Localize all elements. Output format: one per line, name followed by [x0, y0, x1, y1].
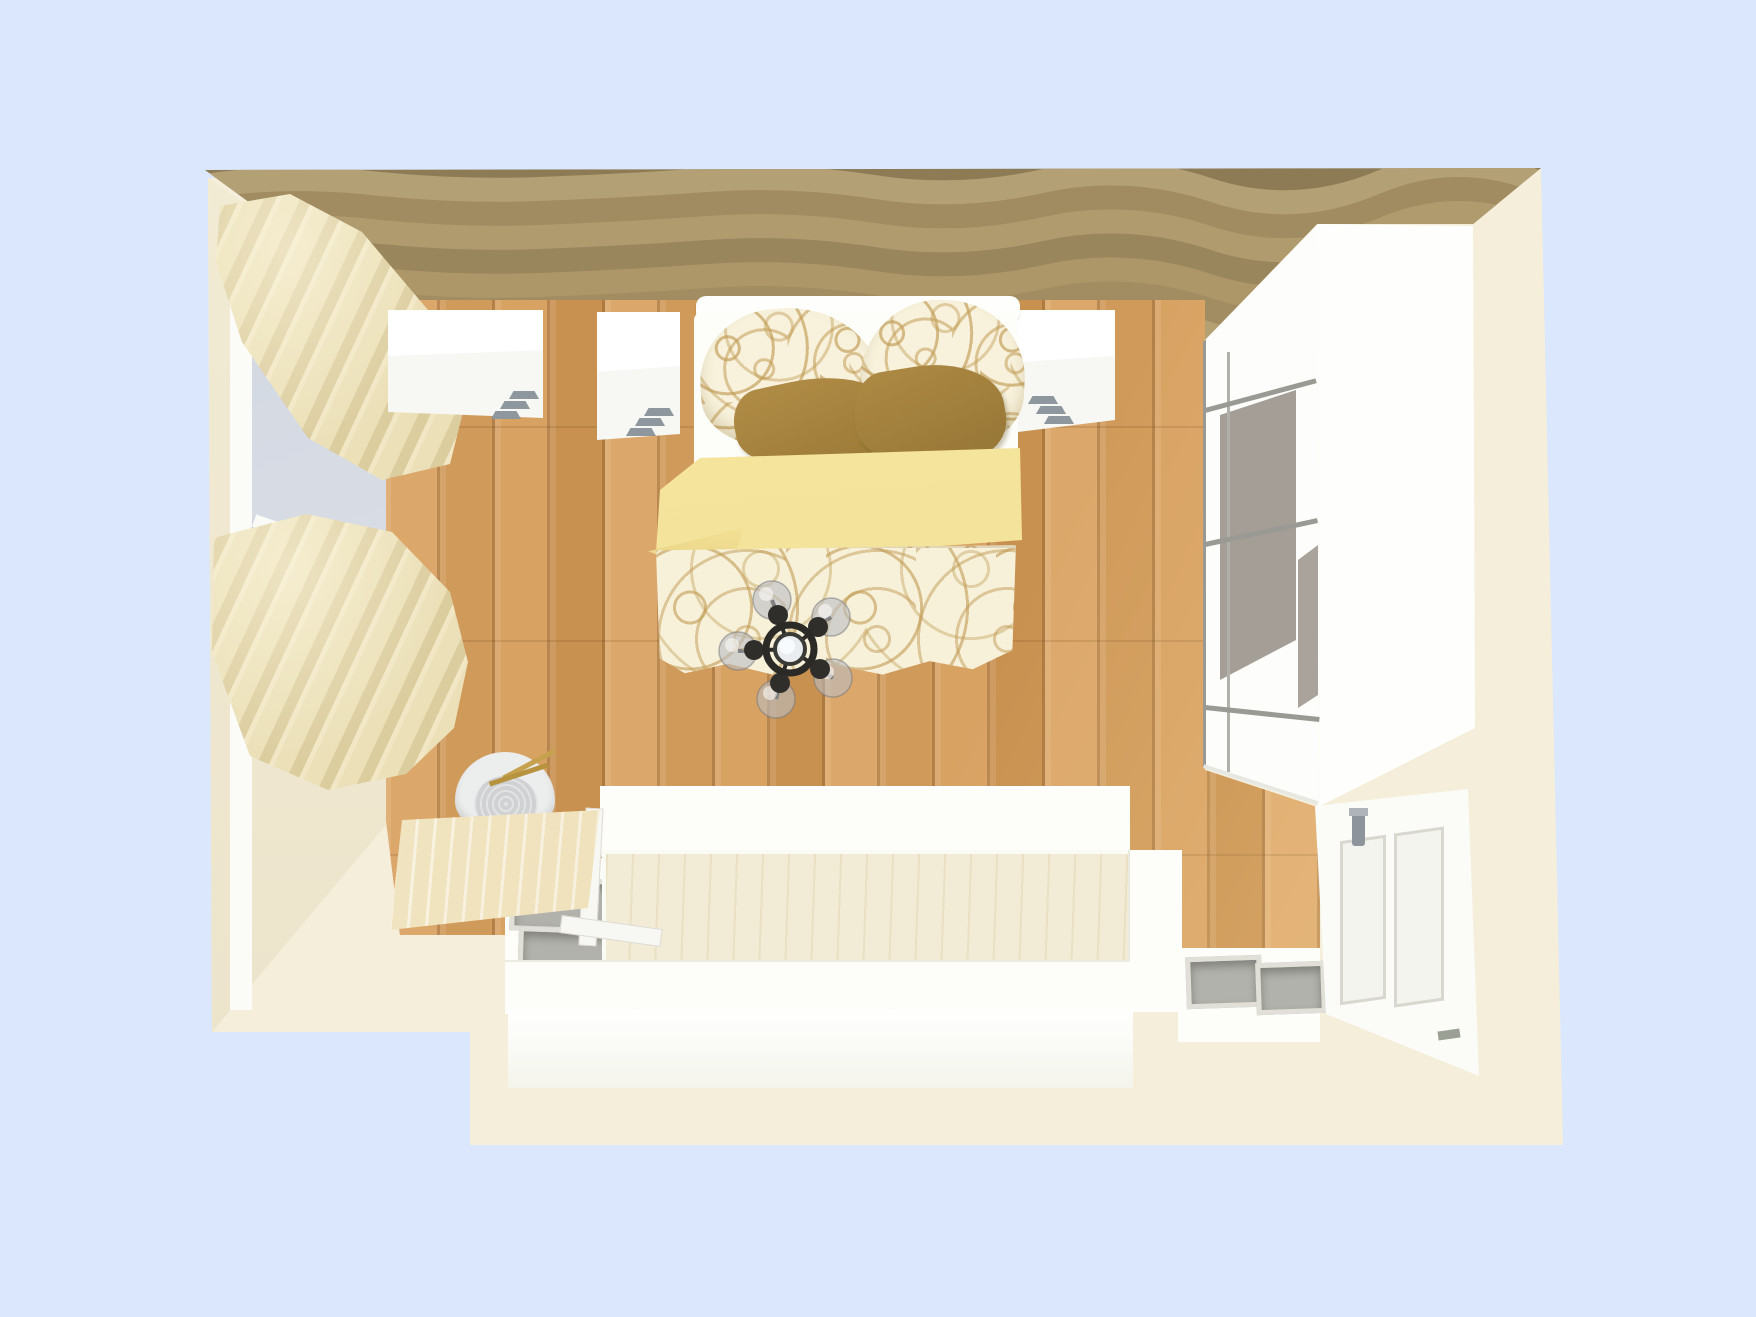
- drawer-handle: [1028, 396, 1058, 404]
- drawer-handle: [500, 401, 530, 409]
- render-viewport: [0, 0, 1756, 1317]
- door-panel: [1394, 826, 1444, 1007]
- dresser-a-top: [388, 310, 543, 356]
- dresser-b-top: [597, 312, 680, 372]
- door-panel: [1340, 835, 1386, 1005]
- platform-right-column: [1128, 850, 1182, 1012]
- nightstand-top: [1018, 310, 1115, 362]
- drawer-handle: [644, 408, 674, 416]
- platform-bottom-row: [505, 960, 1130, 1014]
- drawer-handle: [1044, 416, 1074, 424]
- ceiling-light[interactable]: [700, 557, 880, 737]
- drawer-handle: [491, 411, 521, 419]
- platform-center-recess: [602, 850, 1136, 972]
- drawer-handle: [635, 418, 665, 426]
- drawer-handle: [509, 391, 539, 399]
- wardrobe-frame-bar: [1205, 705, 1320, 722]
- open-storage-box: [1185, 955, 1263, 1010]
- open-storage-box: [1255, 961, 1327, 1015]
- door-handle: [1352, 812, 1365, 846]
- drawer-handle: [626, 428, 656, 436]
- platform-top-row: [600, 786, 1130, 857]
- door-handle-plate: [1349, 808, 1368, 816]
- platform-front-face: [508, 1010, 1133, 1088]
- drawer-handle: [1036, 406, 1066, 414]
